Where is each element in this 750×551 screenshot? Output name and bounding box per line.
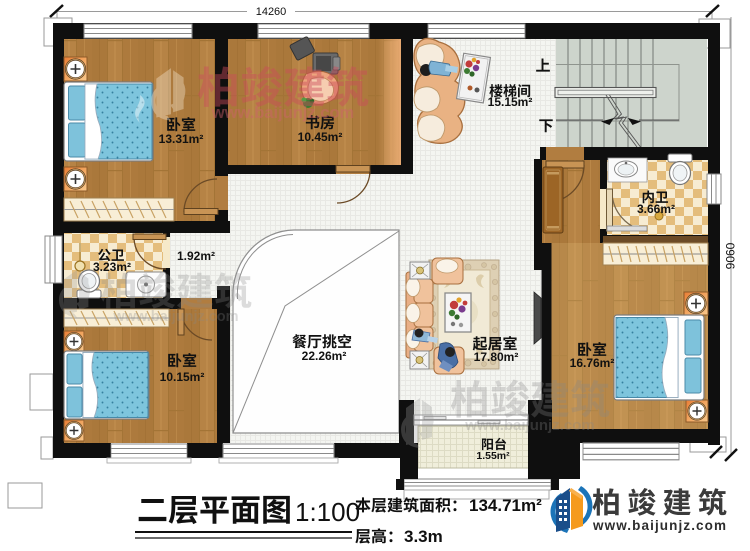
svg-text:3.66m²: 3.66m² [637,202,675,216]
svg-text:www.baijunjz.com: www.baijunjz.com [592,518,727,533]
svg-text:3.3m: 3.3m [404,527,443,546]
svg-text:9060: 9060 [724,242,738,269]
svg-text:www.baijunjz.com: www.baijunjz.com [211,104,354,122]
svg-text:15.15m²: 15.15m² [488,95,533,109]
svg-text:16.76m²: 16.76m² [570,356,615,370]
svg-text:10.45m²: 10.45m² [298,130,343,144]
svg-text:134.71m²: 134.71m² [469,496,542,515]
svg-text:14260: 14260 [256,6,287,18]
svg-text:1:100: 1:100 [295,497,360,527]
svg-text:17.80m²: 17.80m² [474,350,519,364]
svg-text:1.92m²: 1.92m² [177,249,215,263]
svg-text:13.31m²: 13.31m² [159,132,204,146]
svg-text:22.26m²: 22.26m² [302,349,347,363]
svg-text:3.23m²: 3.23m² [93,260,131,274]
svg-text:1.55m²: 1.55m² [476,450,510,462]
svg-text:www.baijunjz.com: www.baijunjz.com [464,417,594,434]
svg-text:www.baijunjz.com: www.baijunjz.com [112,309,238,325]
svg-text:10.15m²: 10.15m² [160,370,205,384]
